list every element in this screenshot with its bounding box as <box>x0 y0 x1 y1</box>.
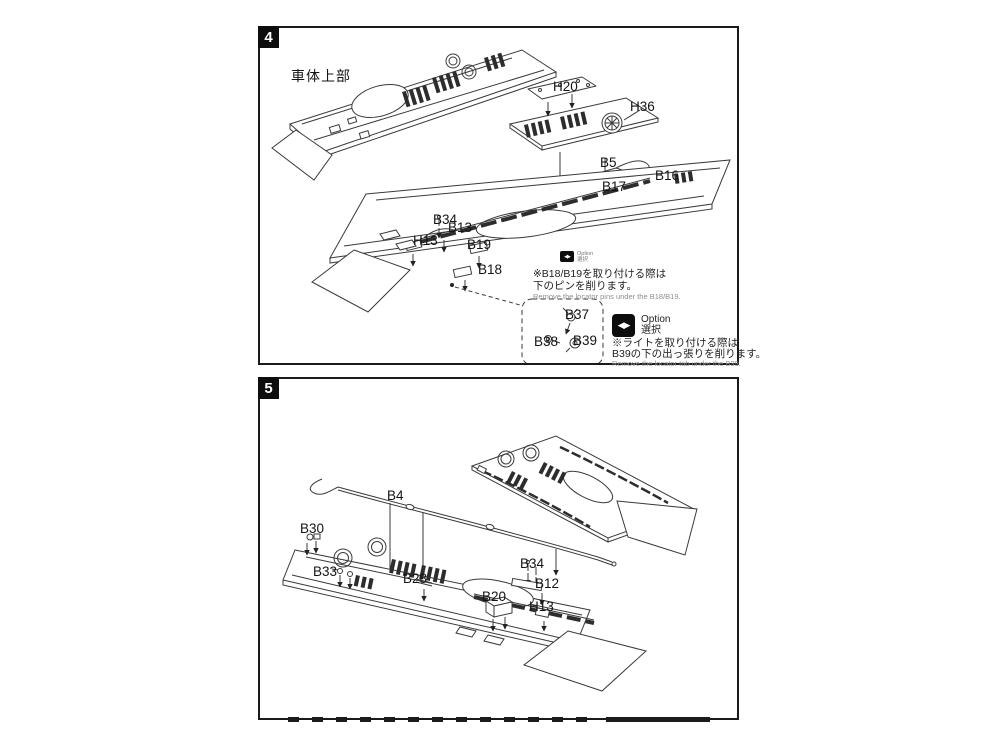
option-caption-small: Option選択 <box>577 251 593 263</box>
part-label-b4: B4 <box>387 488 404 503</box>
note-b18-en: Remove the locator pins under the B18/B1… <box>533 292 681 301</box>
note-b18-jp-line2: 下のピンを削ります。 <box>533 278 637 293</box>
part-label-h20: H20 <box>553 79 578 94</box>
part-label-b17: B17 <box>602 179 626 194</box>
part-label-b30: B30 <box>300 521 324 536</box>
part-label-b12: B12 <box>535 576 559 591</box>
part-label-h13: H13 <box>413 233 438 248</box>
part-label-b5: B5 <box>600 155 617 170</box>
option-caption: Option選択 <box>641 314 670 336</box>
part-label-b28: B28 <box>403 571 427 586</box>
step-5-section: 5 <box>258 377 739 720</box>
part-label-h36: H36 <box>630 99 655 114</box>
step-4-number-badge: 4 <box>258 26 279 48</box>
cutoff-text-remnant-bar <box>606 717 710 722</box>
part-label-b16: B16 <box>655 168 679 183</box>
step-4-section: 4 <box>258 26 739 365</box>
cutoff-text-remnant <box>288 717 600 722</box>
part-label-b33: B33 <box>313 564 337 579</box>
part-label-b34: B34 <box>520 556 544 571</box>
part-label-b19: B19 <box>467 237 491 252</box>
option-toggle-icon: ◀▶ <box>612 314 635 337</box>
part-label-b20: B20 <box>482 589 506 604</box>
part-label-b39: B39 <box>573 333 597 348</box>
option-toggle-icon: ◀▶ <box>560 251 574 262</box>
part-label-b38: B38 <box>534 334 558 349</box>
part-label-h13: H13 <box>529 599 554 614</box>
step-5-part-labels: B4B30B33B28B34B12B20H13 <box>260 379 737 718</box>
step-5-number-badge: 5 <box>258 377 279 399</box>
upper-hull-heading: 車体上部 <box>291 66 351 86</box>
part-label-b13: B13 <box>448 220 472 235</box>
part-label-b37: B37 <box>565 307 589 322</box>
part-label-b18: B18 <box>478 262 502 277</box>
note-b39-en: Remove the locator tab under the B39. <box>612 359 741 368</box>
